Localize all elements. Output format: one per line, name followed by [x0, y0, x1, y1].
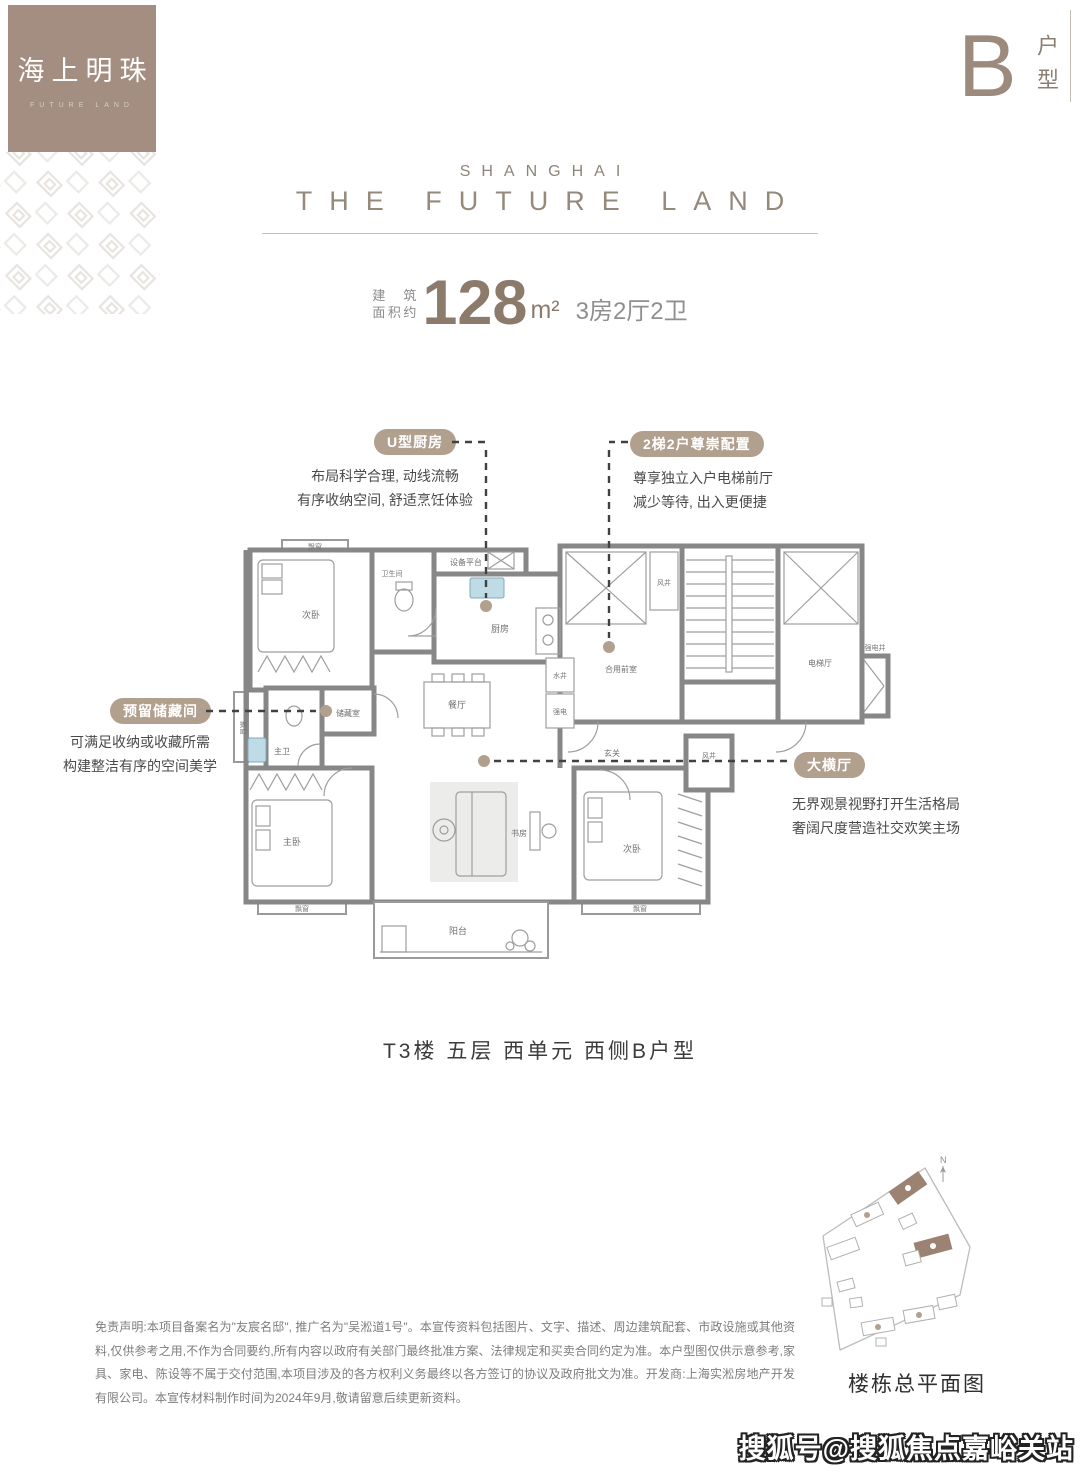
- area-prefix: 建 筑 面积约: [372, 287, 416, 330]
- connector-elevator-dot: [603, 641, 615, 653]
- area-prefix-line2: 面积约: [372, 304, 416, 321]
- room-label-elec: 强电: [553, 707, 567, 716]
- room-label-balcony: 阳台: [449, 925, 467, 936]
- brand-name: 海上明珠: [11, 49, 154, 88]
- room-label-storage: 储藏室: [336, 708, 360, 718]
- room-label-elec-shaft: 强电井: [865, 643, 886, 652]
- unit-divider: [1070, 10, 1071, 102]
- room-label-kitchen: 厨房: [491, 623, 509, 634]
- unit-type-label: 户型: [1030, 34, 1062, 102]
- north-arrow: N: [940, 1155, 947, 1182]
- room-label-foyer: 玄关: [604, 748, 620, 758]
- site-plan-caption: 楼栋总平面图: [812, 1368, 1022, 1398]
- poster-page: 海上明珠 FUTURE LAND B 户型 SHANGHAI THE FUTUR…: [0, 0, 1080, 1472]
- connector-hall-dot: [478, 755, 490, 767]
- room-label-bed-right: 次卧: [623, 843, 641, 854]
- room-label-windwell-top: 风井: [657, 578, 671, 587]
- room-count: 3房2厅2卫: [576, 291, 688, 330]
- north-label: N: [940, 1155, 947, 1165]
- room-label-bed-top: 次卧: [302, 609, 320, 620]
- area-prefix-line1: 建 筑: [372, 287, 416, 304]
- brand-subtitle: FUTURE LAND: [30, 102, 134, 109]
- area-spec: 建 筑 面积约 128 m² 3房2厅2卫: [372, 278, 687, 330]
- connector-kitchen-dot: [480, 600, 492, 612]
- room-label-study: 书房: [511, 828, 527, 838]
- connector-storage-dot: [320, 705, 332, 717]
- room-label-bay-br: 飘窗: [633, 904, 647, 913]
- room-label-dining: 餐厅: [448, 699, 466, 710]
- disclaimer-text: 免责声明:本项目备案名为"友宸名邸", 推广名为"吴淞道1号"。本宣传资料包括图…: [95, 1316, 795, 1410]
- room-label-master-bath: 主卫: [274, 746, 290, 756]
- room-label-bay: 飘窗: [308, 542, 322, 551]
- site-plan: N: [812, 1152, 1022, 1362]
- page-title: THE FUTURE LAND: [0, 186, 1080, 217]
- area-value: 128: [422, 278, 527, 330]
- room-label-bath: 卫生间: [382, 569, 403, 578]
- area-unit: m²: [530, 296, 559, 330]
- room-label-bay-bl: 飘窗: [295, 904, 309, 913]
- room-label-master-bed: 主卧: [283, 836, 301, 847]
- header-kicker: SHANGHAI: [0, 163, 1080, 181]
- room-label-vestibule: 合用前室: [605, 664, 637, 674]
- brand-logo: 海上明珠 FUTURE LAND: [8, 5, 156, 152]
- room-label-water-shaft: 水井: [553, 671, 567, 680]
- floor-plan-caption: T3楼 五层 西单元 西侧B户型: [0, 1035, 1080, 1065]
- unit-type-letter: B: [958, 22, 1017, 110]
- floor-plan: 飘窗 次卧 卫生间 设备平台 厨房 风井 合用前室 电梯厅 强电井 水井 强电 …: [60, 420, 910, 980]
- room-label-windwell-bottom: 风井: [702, 751, 716, 760]
- watermark: 搜狐号@搜狐焦点嘉峪关站: [739, 1427, 1074, 1466]
- room-label-bay-left: 飘窗: [239, 721, 248, 735]
- room-label-equip: 设备平台: [450, 557, 482, 567]
- room-label-elev-hall: 电梯厅: [808, 658, 832, 668]
- title-divider: [262, 233, 818, 234]
